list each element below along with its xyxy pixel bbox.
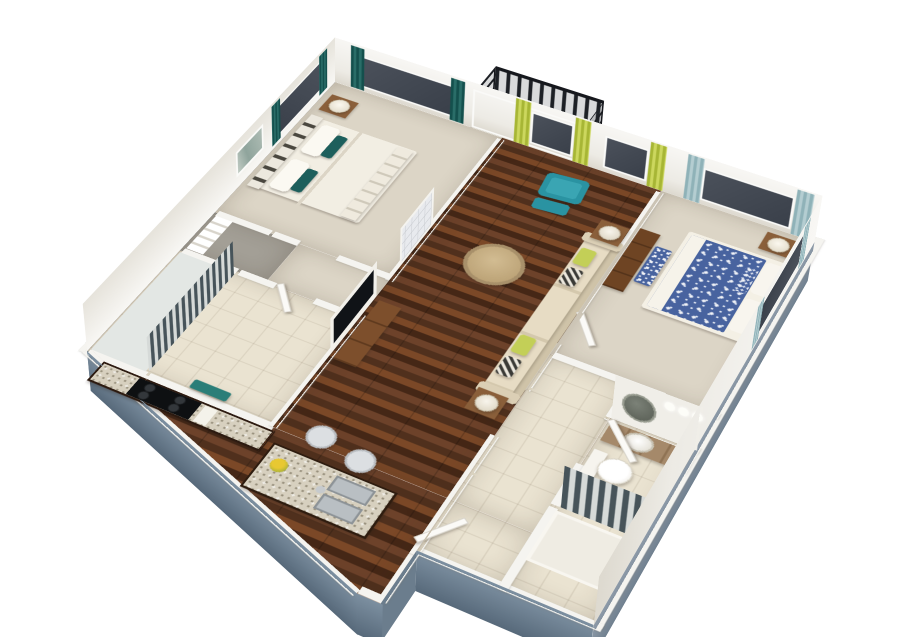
floor-plan-render xyxy=(0,0,900,637)
master-curtain-left xyxy=(351,45,365,91)
master-west-curtain-top xyxy=(319,48,327,96)
vanity-light-1 xyxy=(664,401,675,413)
vanity-mirror xyxy=(621,389,658,428)
vanity-light-2 xyxy=(678,406,689,418)
living-curtain-left xyxy=(513,98,531,147)
apartment-3d-model xyxy=(5,82,815,637)
living-curtain-right xyxy=(646,142,667,191)
master-west-curtain-bottom xyxy=(271,98,280,147)
living-curtain-middle xyxy=(572,117,591,166)
living-window-2 xyxy=(603,136,650,182)
master-curtain-right xyxy=(450,78,466,124)
